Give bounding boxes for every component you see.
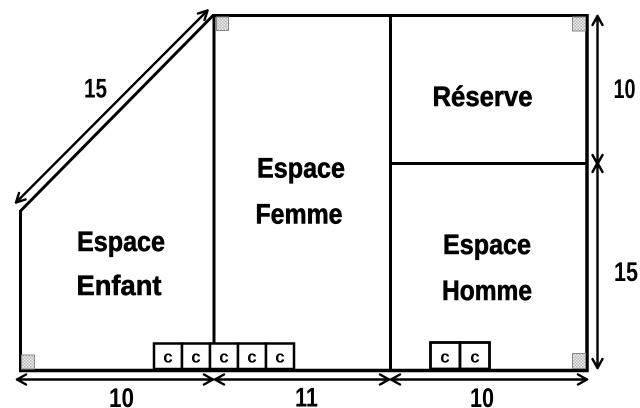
svg-text:15: 15 bbox=[614, 257, 638, 287]
svg-text:15: 15 bbox=[84, 74, 107, 104]
svg-text:Réserve: Réserve bbox=[433, 81, 533, 112]
svg-text:Homme: Homme bbox=[442, 275, 532, 306]
svg-text:Femme: Femme bbox=[256, 199, 343, 230]
svg-text:c: c bbox=[247, 348, 256, 367]
svg-text:c: c bbox=[275, 348, 284, 367]
svg-text:Espace: Espace bbox=[77, 226, 165, 257]
svg-text:c: c bbox=[163, 348, 172, 367]
svg-text:Enfant: Enfant bbox=[77, 270, 162, 301]
svg-text:c: c bbox=[470, 348, 479, 367]
svg-text:10: 10 bbox=[470, 383, 494, 408]
svg-text:c: c bbox=[440, 348, 449, 367]
svg-text:Espace: Espace bbox=[443, 229, 531, 260]
svg-text:Espace: Espace bbox=[257, 153, 345, 184]
svg-text:10: 10 bbox=[109, 383, 134, 408]
svg-text:c: c bbox=[191, 348, 200, 367]
svg-text:11: 11 bbox=[295, 383, 318, 408]
svg-text:10: 10 bbox=[614, 74, 636, 104]
svg-text:c: c bbox=[219, 348, 228, 367]
